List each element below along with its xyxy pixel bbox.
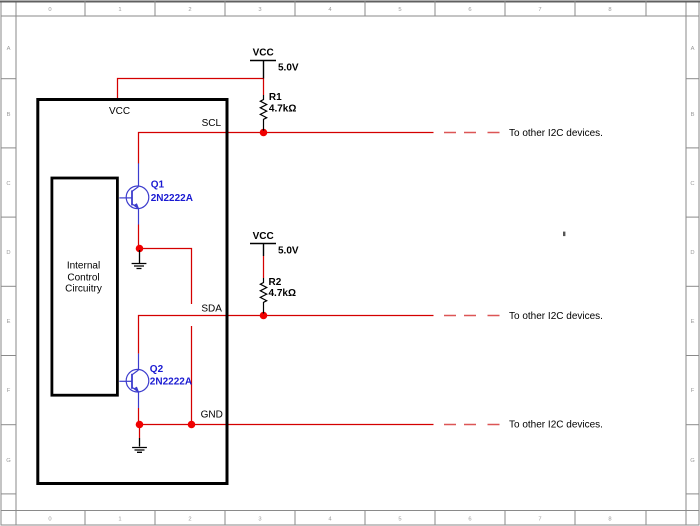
svg-text:7: 7 bbox=[538, 7, 541, 13]
svg-text:6: 6 bbox=[468, 7, 471, 13]
svg-text:7: 7 bbox=[538, 517, 541, 523]
svg-text:1: 1 bbox=[118, 7, 121, 13]
svg-text:4: 4 bbox=[328, 517, 332, 523]
svg-text:VCC: VCC bbox=[109, 106, 130, 117]
svg-text:E: E bbox=[7, 319, 11, 325]
svg-text:F: F bbox=[7, 388, 11, 394]
svg-text:GND: GND bbox=[201, 409, 223, 420]
svg-text:1: 1 bbox=[118, 517, 121, 523]
svg-text:D: D bbox=[6, 250, 10, 256]
svg-text:C: C bbox=[6, 181, 10, 187]
svg-text:F: F bbox=[691, 388, 695, 394]
svg-text:B: B bbox=[7, 112, 11, 118]
svg-text:A: A bbox=[7, 46, 11, 52]
svg-text:2N2222A: 2N2222A bbox=[151, 193, 193, 204]
svg-text:0: 0 bbox=[48, 517, 51, 523]
svg-text:8: 8 bbox=[608, 7, 611, 13]
svg-text:E: E bbox=[691, 319, 695, 325]
svg-text:D: D bbox=[690, 250, 694, 256]
svg-text:Q1: Q1 bbox=[151, 179, 165, 190]
svg-text:2N2222A: 2N2222A bbox=[150, 376, 192, 387]
svg-text:Internal: Internal bbox=[67, 260, 100, 271]
svg-text:SCL: SCL bbox=[202, 118, 222, 129]
svg-text:8: 8 bbox=[608, 517, 611, 523]
svg-text:2: 2 bbox=[188, 7, 191, 13]
svg-text:0: 0 bbox=[48, 7, 51, 13]
svg-text:G: G bbox=[690, 458, 695, 464]
svg-text:3: 3 bbox=[258, 7, 261, 13]
svg-text:G: G bbox=[6, 458, 11, 464]
svg-text:To other I2C devices.: To other I2C devices. bbox=[509, 128, 603, 139]
svg-text:5.0V: 5.0V bbox=[278, 246, 299, 257]
svg-text:5: 5 bbox=[398, 517, 401, 523]
svg-text:To other I2C devices.: To other I2C devices. bbox=[509, 311, 603, 322]
svg-text:6: 6 bbox=[468, 517, 471, 523]
svg-text:B: B bbox=[691, 112, 695, 118]
svg-text:SDA: SDA bbox=[201, 304, 222, 315]
svg-text:VCC: VCC bbox=[253, 231, 274, 242]
svg-text:R2: R2 bbox=[269, 277, 282, 288]
svg-text:To other I2C devices.: To other I2C devices. bbox=[509, 420, 603, 431]
svg-text:C: C bbox=[690, 181, 694, 187]
svg-text:4.7kΩ: 4.7kΩ bbox=[269, 288, 296, 299]
svg-text:5: 5 bbox=[398, 7, 401, 13]
svg-text:A: A bbox=[691, 46, 695, 52]
svg-text:4.7kΩ: 4.7kΩ bbox=[269, 104, 296, 115]
svg-text:Circuitry: Circuitry bbox=[65, 283, 102, 294]
svg-text:2: 2 bbox=[188, 517, 191, 523]
svg-text:R1: R1 bbox=[269, 92, 282, 103]
svg-text:4: 4 bbox=[328, 7, 332, 13]
svg-text:VCC: VCC bbox=[253, 47, 274, 58]
svg-text:5.0V: 5.0V bbox=[278, 63, 299, 74]
svg-text:3: 3 bbox=[258, 517, 261, 523]
svg-text:Q2: Q2 bbox=[150, 364, 164, 375]
svg-text:Control: Control bbox=[67, 272, 99, 283]
